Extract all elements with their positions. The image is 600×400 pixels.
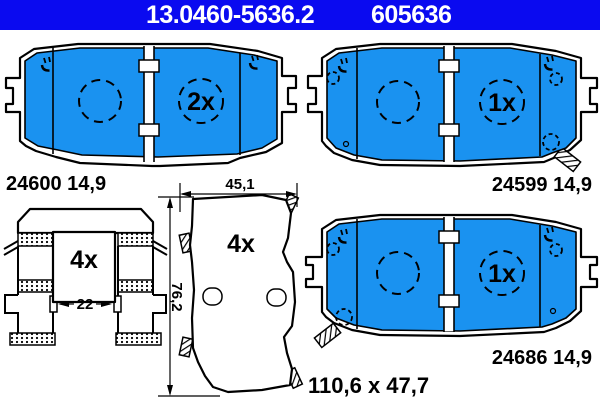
wear-indicator-tab [314,323,340,347]
fitting-clip-drawing: 4x 22 [4,209,167,345]
pad-number-label: 24599 14,9 [492,174,592,196]
backplate-drawing: 4x [179,194,302,392]
technical-drawing-canvas: 2x 24600 14,9 1x 24599 14,9 [0,0,600,400]
clip-bottom-flange [10,333,55,345]
clip-serrated-band [18,233,53,246]
pad-drawing-top-right: 1x 24599 14,9 [308,44,597,196]
clip-foot-left [5,295,18,333]
overall-dimensions-label: 110,6 x 47,7 [308,373,429,398]
mounting-lug [179,337,193,357]
clip-serrated-band [118,280,153,292]
quantity-label: 1x [488,260,516,288]
quantity-label: 4x [70,246,98,274]
slot-notch [139,124,159,136]
quantity-label: 1x [488,89,516,117]
clip-top-plate [18,209,153,233]
pad-drawing-bottom-right: 1x 24686 14,9 [306,215,597,369]
dimension-width-value: 45,1 [225,176,254,193]
clip-serrated-band [18,280,53,292]
pad-number-label: 24686 14,9 [492,347,592,369]
dimension-height-value: 76,2 [168,282,185,311]
drawing-sheet: 13.0460-5636.2 605636 [0,0,600,400]
backplate-hole [267,289,286,306]
slot-notch [439,124,459,136]
pad-drawing-top-left: 2x 24600 14,9 [6,44,296,195]
backplate-hole [203,288,222,305]
slot-notch [139,60,159,72]
clip-serrated-band [118,233,153,246]
slot-notch [439,231,459,243]
slot-notch [439,295,459,307]
dimension-clip-gap-value: 22 [77,296,94,313]
quantity-label: 2x [187,88,215,116]
slot-notch [439,60,459,72]
quantity-label: 4x [227,230,255,258]
clip-bottom-flange [116,333,161,345]
clip-foot-right [153,295,166,333]
pad-number-label: 24600 14,9 [6,173,106,195]
